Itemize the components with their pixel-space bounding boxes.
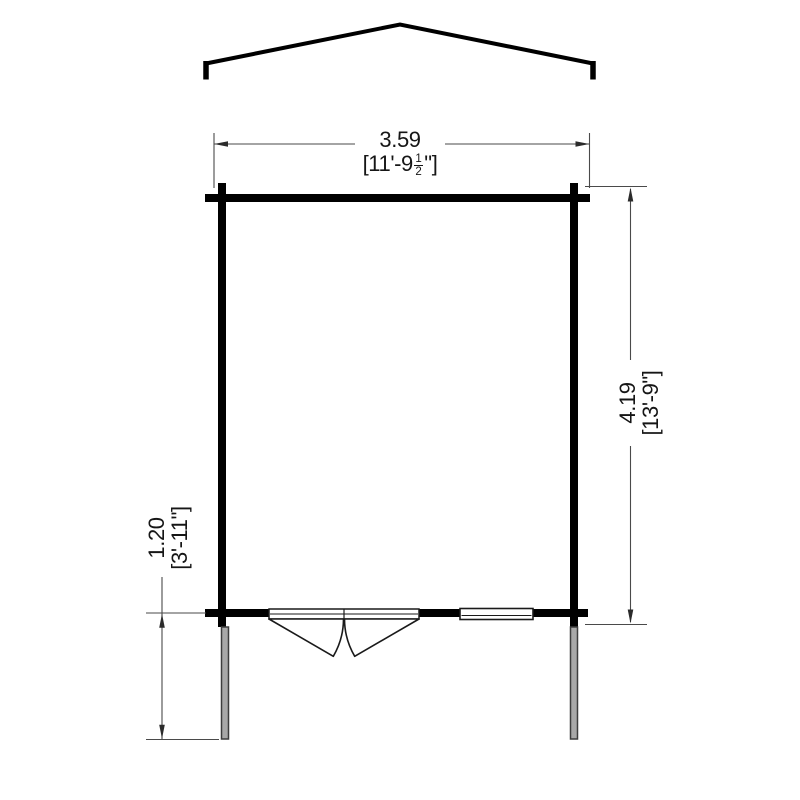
half-inch-fraction: 12 <box>414 153 423 178</box>
height-arrow-down <box>628 610 634 624</box>
door-leaf-right-swing <box>345 619 420 656</box>
projection-dimension <box>146 577 219 740</box>
projection-metric-value: 1.20 <box>145 484 168 592</box>
door-leaf-left-swing <box>269 619 344 656</box>
width-arrow-right <box>576 141 590 147</box>
roof-outline <box>206 25 593 80</box>
roof-slopes <box>206 25 593 64</box>
plan-linework <box>0 0 800 800</box>
height-metric-value: 4.19 <box>616 349 639 457</box>
fraction-denominator: 2 <box>414 166 423 178</box>
projection-arrow-up <box>159 614 165 628</box>
width-imperial-suffix: "] <box>424 151 437 176</box>
floor-plan-drawing: 3.59 [11'-912"] 4.19 [13'-9"] 1.20 [3'-1… <box>0 0 800 800</box>
projection-dimension-label: 1.20 [3'-11"] <box>145 484 193 592</box>
height-dimension-label: 4.19 [13'-9"] <box>616 349 664 457</box>
building-walls <box>205 183 590 627</box>
window <box>460 609 533 620</box>
width-metric-value: 3.59 <box>300 128 500 151</box>
projection-arrow-down <box>159 725 165 739</box>
height-imperial-value: [13'-9"] <box>639 349 662 457</box>
width-imperial-prefix: [11'-9 <box>363 151 413 176</box>
fraction-numerator: 1 <box>414 153 423 166</box>
width-arrow-left <box>214 141 228 147</box>
right-support-post <box>571 627 578 739</box>
width-dimension-label: 3.59 [11'-912"] <box>300 128 500 176</box>
double-door <box>269 609 419 656</box>
height-arrow-up <box>628 188 634 202</box>
window-frame <box>460 609 533 620</box>
left-support-post <box>222 627 229 739</box>
projection-imperial-value: [3'-11"] <box>168 484 191 592</box>
width-imperial-value: [11'-912"] <box>300 151 500 176</box>
